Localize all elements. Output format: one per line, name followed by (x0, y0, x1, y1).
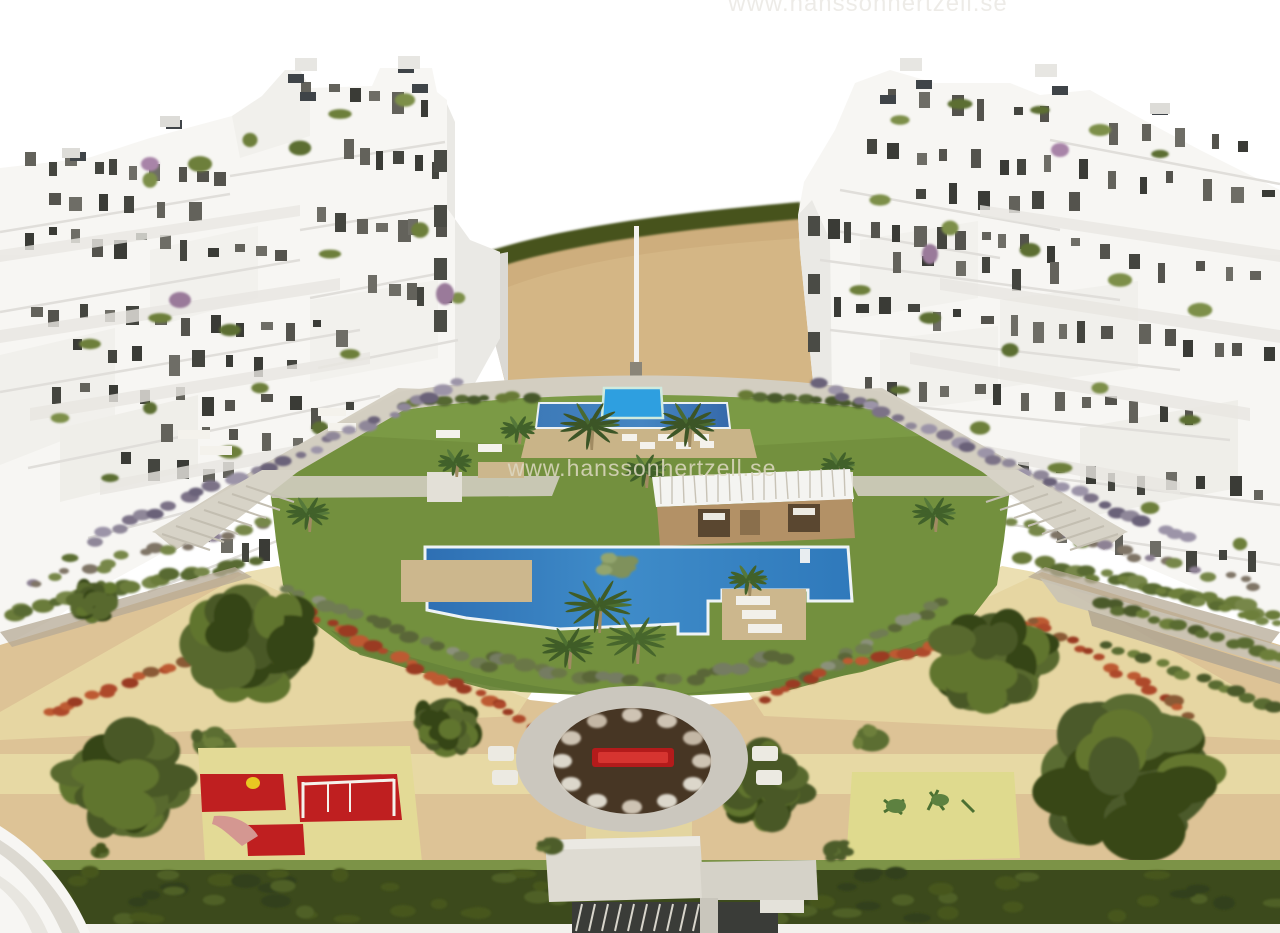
svg-text:www.hanssonhertzell.se: www.hanssonhertzell.se (507, 455, 777, 481)
svg-text:www.hanssonhertzell.se: www.hanssonhertzell.se (727, 0, 1007, 17)
